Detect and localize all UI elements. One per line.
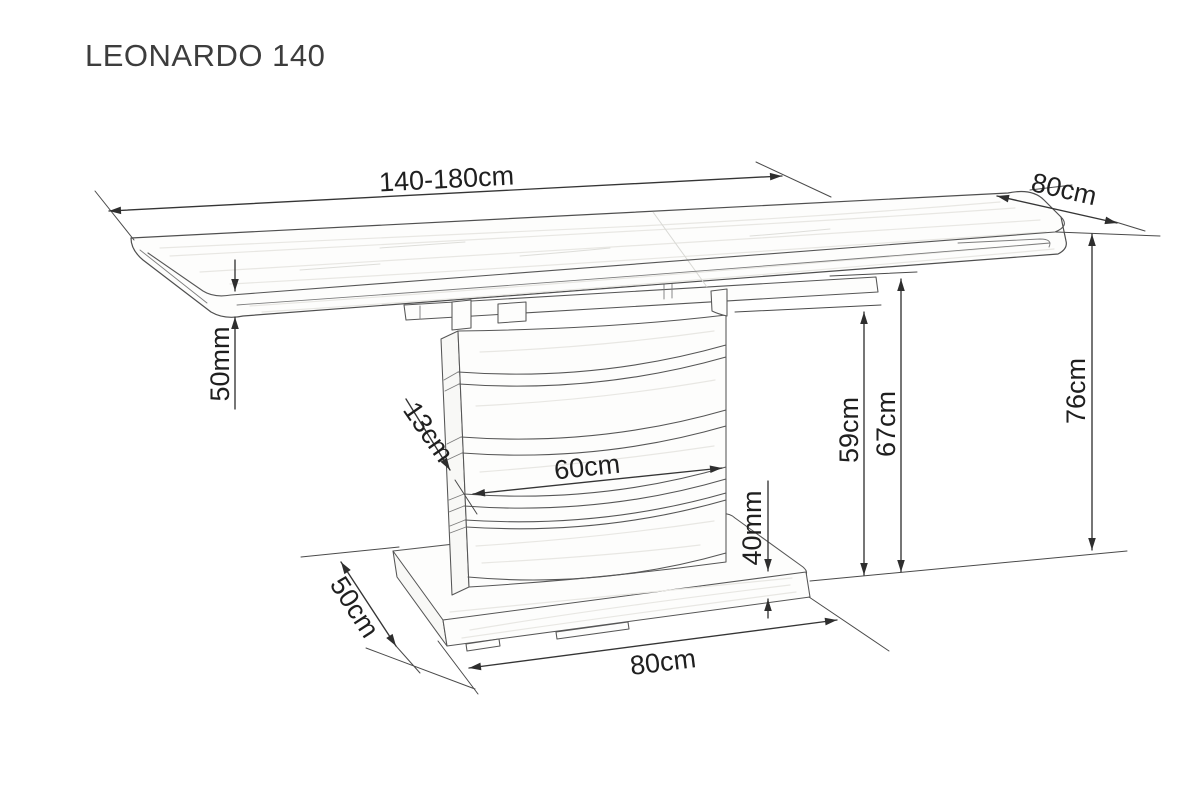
dim-label-top-length: 140-180cm (378, 160, 514, 197)
dim-apron-height: 59cm (834, 312, 864, 575)
column-neck (711, 289, 727, 316)
dim-top-length: 140-180cm (109, 160, 782, 211)
dim-total-height: 76cm (1061, 234, 1092, 550)
furniture-dimension-diagram: 140-180cm 80cm 76cm 50mm 13cm 60cm (0, 0, 1200, 800)
dim-base-depth: 50cm (324, 562, 396, 646)
dim-label-underside-height: 67cm (871, 391, 901, 457)
slide-block-left (452, 300, 471, 330)
technical-drawing: 140-180cm 80cm 76cm 50mm 13cm 60cm (0, 0, 1200, 800)
dim-label-base-thickness: 40mm (737, 490, 767, 565)
slide-block-right (498, 302, 526, 323)
product-title: LEONARDO 140 (85, 38, 325, 73)
dim-label-base-width: 80cm (628, 643, 697, 681)
dim-label-base-depth: 50cm (324, 571, 385, 643)
dim-underside-height: 67cm (871, 279, 901, 572)
dim-label-top-thickness: 50mm (205, 326, 235, 401)
table-drawing (131, 192, 1066, 651)
dim-label-total-height: 76cm (1061, 358, 1091, 424)
dim-label-apron-height: 59cm (834, 397, 864, 463)
